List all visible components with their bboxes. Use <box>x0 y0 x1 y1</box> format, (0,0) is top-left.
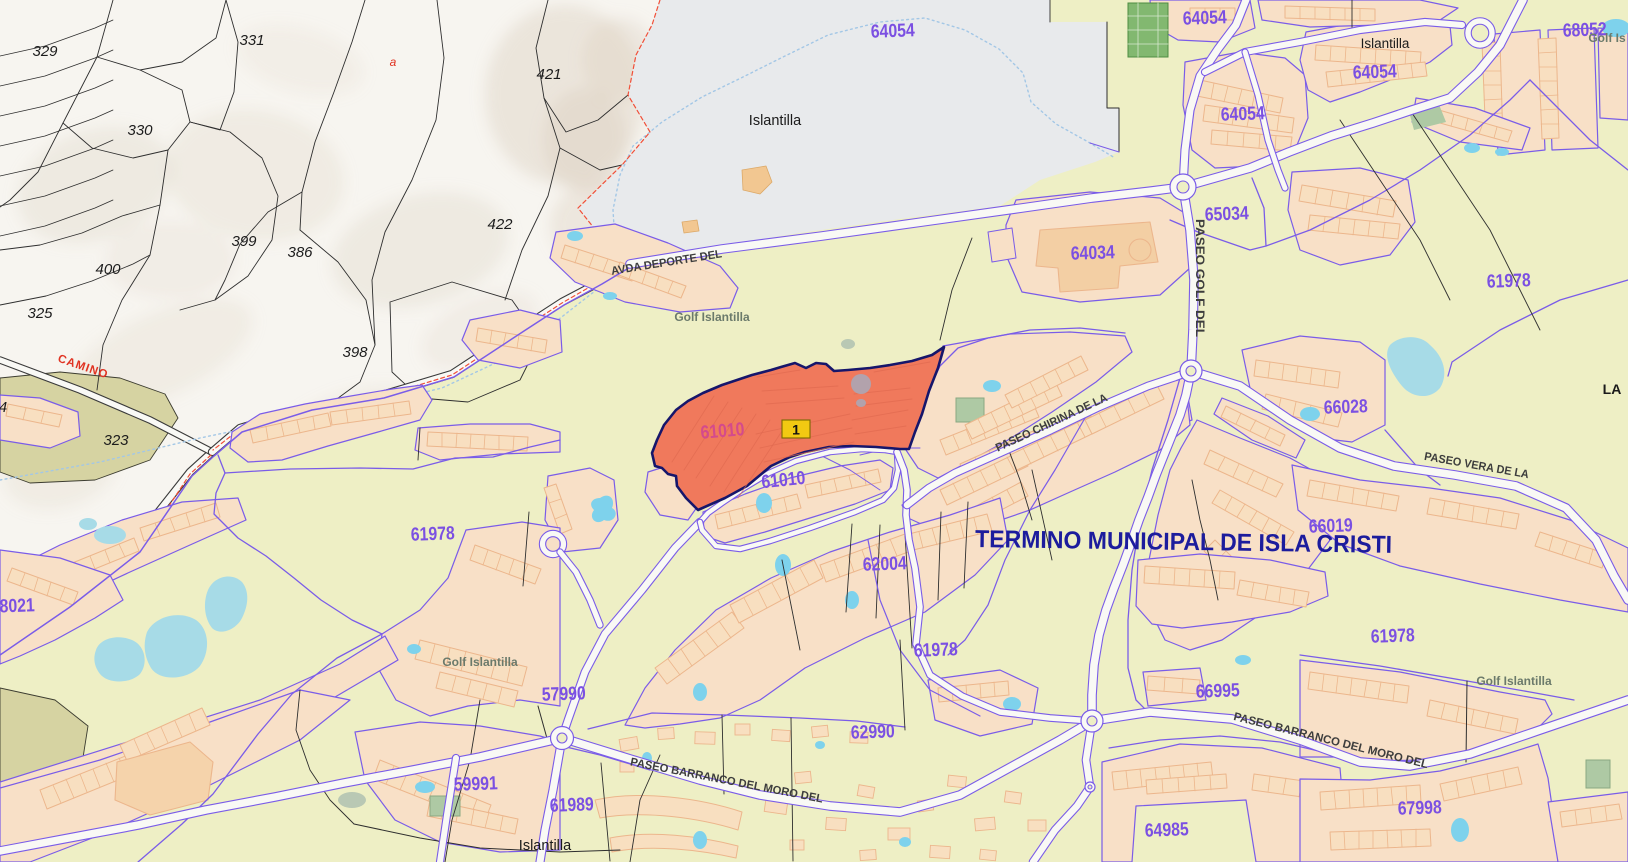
svg-text:67998: 67998 <box>1397 797 1442 820</box>
svg-text:68021: 68021 <box>0 595 36 618</box>
svg-text:65034: 65034 <box>1204 203 1249 226</box>
svg-text:399: 399 <box>231 233 257 250</box>
svg-text:330: 330 <box>127 122 153 139</box>
svg-text:66995: 66995 <box>1195 680 1240 703</box>
svg-text:62990: 62990 <box>850 721 895 744</box>
svg-text:329: 329 <box>32 43 58 60</box>
svg-text:64054: 64054 <box>1220 103 1265 126</box>
svg-text:Islantilla: Islantilla <box>1361 36 1410 51</box>
svg-text:62004: 62004 <box>862 553 907 576</box>
svg-text:a: a <box>390 55 397 69</box>
svg-text:386: 386 <box>287 244 313 261</box>
svg-text:PASEO GOLF DEL: PASEO GOLF DEL <box>1193 219 1205 337</box>
svg-text:331: 331 <box>239 32 264 49</box>
svg-text:400: 400 <box>95 261 121 278</box>
svg-text:64985: 64985 <box>1144 819 1189 842</box>
svg-text:61978: 61978 <box>1370 625 1415 648</box>
svg-text:422: 422 <box>487 216 513 233</box>
svg-text:59991: 59991 <box>453 773 498 796</box>
svg-text:Islantilla: Islantilla <box>749 113 802 129</box>
svg-text:1: 1 <box>792 422 800 438</box>
svg-text:61010: 61010 <box>700 419 746 444</box>
svg-text:4: 4 <box>0 399 7 416</box>
svg-text:64054: 64054 <box>870 20 915 43</box>
svg-text:61978: 61978 <box>913 639 958 662</box>
svg-text:323: 323 <box>103 432 129 449</box>
svg-text:Golf Islantilla: Golf Islantilla <box>674 310 750 324</box>
svg-text:LA: LA <box>1603 381 1622 397</box>
svg-text:57990: 57990 <box>541 683 586 706</box>
svg-text:Islantilla: Islantilla <box>519 838 572 854</box>
svg-text:Golf Islantilla: Golf Islantilla <box>442 655 518 669</box>
svg-text:61978: 61978 <box>1486 270 1531 293</box>
svg-text:Golf Is: Golf Is <box>1588 31 1626 45</box>
svg-text:421: 421 <box>536 66 561 83</box>
svg-text:64034: 64034 <box>1070 242 1115 265</box>
svg-text:64054: 64054 <box>1182 7 1227 30</box>
svg-text:66028: 66028 <box>1323 396 1368 419</box>
svg-text:Golf Islantilla: Golf Islantilla <box>1476 674 1552 688</box>
svg-text:61978: 61978 <box>410 523 455 546</box>
svg-text:325: 325 <box>27 305 53 322</box>
svg-text:398: 398 <box>342 344 368 361</box>
svg-text:64054: 64054 <box>1352 61 1397 84</box>
svg-text:61989: 61989 <box>549 794 594 817</box>
